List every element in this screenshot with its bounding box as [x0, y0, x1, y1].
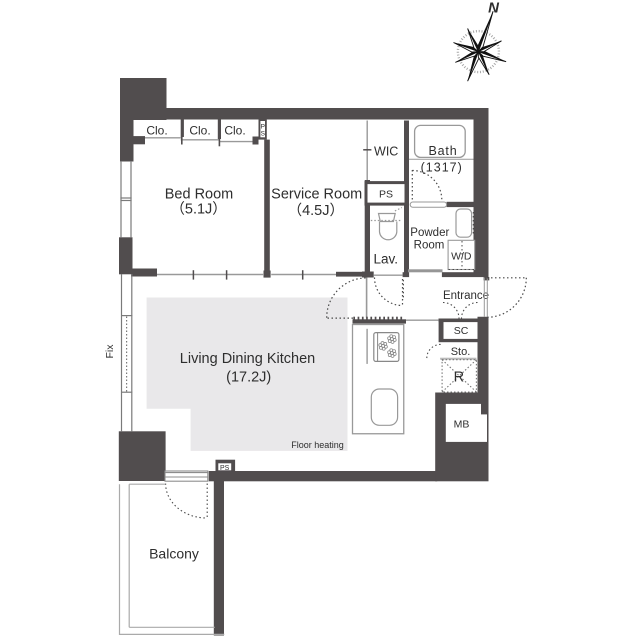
svg-text:Entrance: Entrance — [443, 290, 489, 302]
svg-text:Clo.: Clo. — [224, 124, 245, 138]
svg-text:Sto.: Sto. — [451, 346, 471, 358]
svg-text:Service Room: Service Room — [271, 187, 362, 203]
svg-text:Bath: Bath — [429, 144, 458, 158]
svg-text:Powder: Powder — [410, 227, 449, 239]
svg-text:(1317): (1317) — [421, 161, 463, 175]
svg-text:（5.1J）: （5.1J） — [170, 201, 226, 218]
svg-text:P: P — [261, 124, 265, 131]
svg-text:R: R — [454, 370, 464, 386]
svg-text:Clo.: Clo. — [189, 124, 210, 138]
svg-text:WIC: WIC — [374, 145, 398, 159]
svg-text:Lav.: Lav. — [374, 252, 399, 267]
svg-text:Fix: Fix — [104, 344, 116, 359]
svg-text:Clo.: Clo. — [146, 124, 167, 138]
svg-text:Room: Room — [414, 240, 445, 252]
svg-text:W/D: W/D — [451, 251, 472, 263]
svg-text:Balcony: Balcony — [149, 546, 199, 562]
svg-text:Bed Room: Bed Room — [165, 187, 234, 203]
svg-text:Floor heating: Floor heating — [291, 440, 344, 450]
svg-text:N: N — [488, 0, 500, 17]
svg-text:PS: PS — [220, 465, 230, 472]
svg-text:MB: MB — [454, 419, 470, 431]
svg-text:SC: SC — [454, 325, 469, 337]
svg-text:(17.2J): (17.2J) — [226, 370, 271, 386]
svg-text:PS: PS — [379, 189, 393, 201]
svg-text:（4.5J）: （4.5J） — [288, 202, 344, 219]
svg-text:S: S — [261, 131, 266, 138]
svg-text:Living Dining Kitchen: Living Dining Kitchen — [180, 351, 315, 367]
